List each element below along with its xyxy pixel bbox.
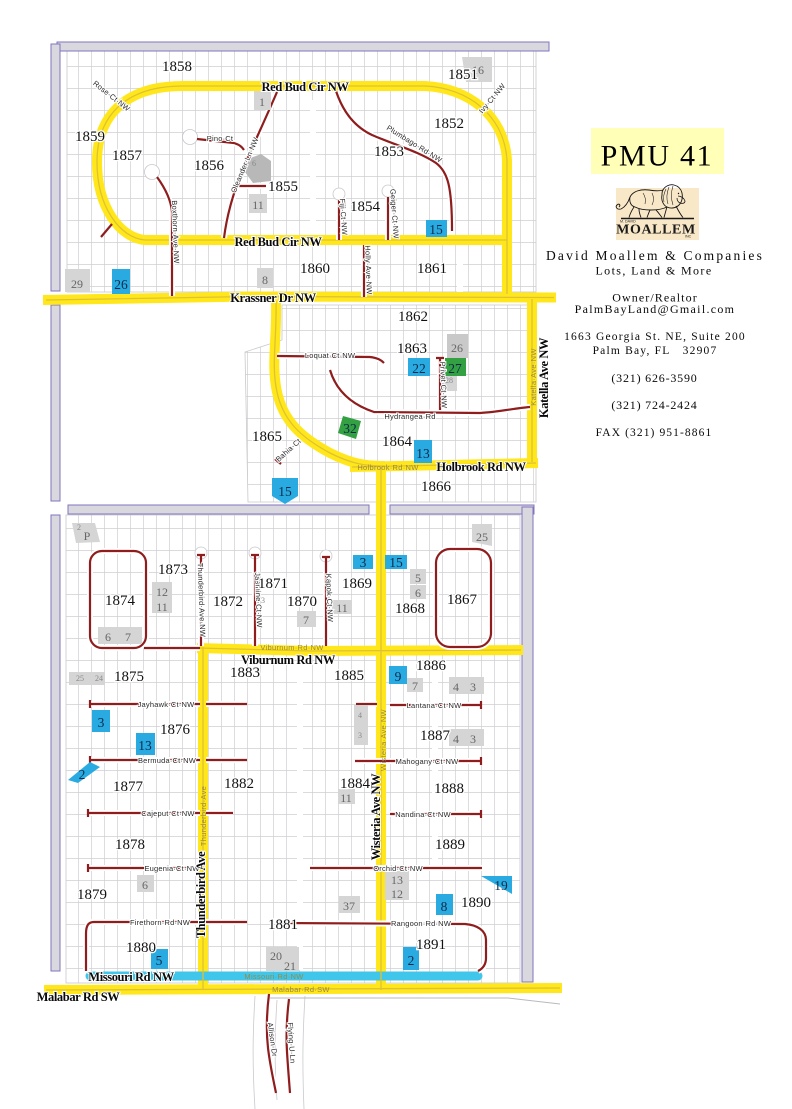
svg-text:7: 7	[412, 679, 418, 693]
svg-text:Wisteria Ave NW: Wisteria Ave NW	[369, 773, 383, 860]
svg-text:Thunderbird Ave: Thunderbird Ave	[194, 851, 208, 938]
svg-text:Palm Bay, FL 32907: Palm Bay, FL 32907	[593, 345, 718, 357]
svg-text:13: 13	[138, 738, 152, 753]
svg-text:Jayhawk·Ct·NW: Jayhawk·Ct·NW	[138, 700, 195, 709]
svg-text:Lantana·Ct·NW: Lantana·Ct·NW	[407, 701, 462, 710]
svg-text:15: 15	[389, 555, 403, 570]
svg-text:1870: 1870	[287, 594, 317, 610]
svg-text:1873: 1873	[158, 562, 188, 578]
svg-text:3: 3	[470, 680, 476, 694]
svg-text:6: 6	[252, 159, 256, 168]
svg-text:1862: 1862	[398, 309, 428, 325]
svg-text:Hydrangea·Rd: Hydrangea·Rd	[384, 412, 435, 421]
svg-text:32: 32	[343, 421, 357, 436]
svg-text:1863: 1863	[397, 341, 427, 357]
svg-text:INC: INC	[685, 235, 692, 239]
svg-text:1885: 1885	[334, 668, 364, 684]
svg-text:1860: 1860	[300, 261, 330, 277]
svg-text:Missouri·Rd·NW: Missouri·Rd·NW	[244, 972, 304, 981]
svg-text:5: 5	[415, 571, 421, 585]
svg-text:12: 12	[156, 585, 168, 599]
svg-text:Katella Ave NW: Katella Ave NW	[537, 337, 551, 418]
svg-text:(321) 724-2424: (321) 724-2424	[611, 398, 697, 412]
svg-text:1866: 1866	[421, 479, 452, 495]
svg-text:Bermuda·Ct·NW: Bermuda·Ct·NW	[138, 756, 197, 765]
svg-text:6: 6	[415, 586, 421, 600]
svg-text:4: 4	[453, 680, 459, 694]
svg-text:37: 37	[343, 899, 355, 913]
svg-text:4: 4	[453, 732, 459, 746]
svg-text:Orchid·Ct·NW: Orchid·Ct·NW	[373, 864, 423, 873]
svg-text:1886: 1886	[416, 658, 447, 674]
svg-text:11: 11	[336, 601, 348, 615]
svg-text:1884: 1884	[340, 776, 371, 792]
svg-text:3: 3	[470, 732, 476, 746]
svg-text:6: 6	[142, 878, 148, 892]
svg-text:26: 26	[114, 277, 128, 292]
svg-text:Pino·Ct: Pino·Ct	[207, 134, 234, 143]
svg-text:1874: 1874	[105, 593, 136, 609]
svg-text:5: 5	[156, 953, 163, 968]
svg-text:(321) 626-3590: (321) 626-3590	[611, 371, 697, 385]
svg-text:Kapok·Ct·NW: Kapok·Ct·NW	[324, 574, 335, 623]
svg-text:29: 29	[71, 277, 83, 291]
svg-text:1852: 1852	[434, 116, 464, 132]
svg-text:1859: 1859	[75, 129, 105, 145]
svg-text:1857: 1857	[112, 148, 143, 164]
svg-text:1891: 1891	[416, 937, 446, 953]
svg-text:Eugenia·Ct·NW: Eugenia·Ct·NW	[144, 864, 200, 873]
svg-text:2: 2	[77, 523, 81, 532]
svg-text:1883: 1883	[230, 665, 260, 681]
svg-text:1853: 1853	[374, 144, 404, 160]
svg-text:1: 1	[259, 95, 265, 109]
svg-text:27: 27	[448, 361, 462, 376]
svg-text:12: 12	[391, 887, 403, 901]
svg-text:1868: 1868	[395, 601, 425, 617]
svg-text:1663 Georgia St. NE, Suite 200: 1663 Georgia St. NE, Suite 200	[564, 331, 746, 343]
svg-text:7: 7	[125, 630, 131, 644]
svg-text:1879: 1879	[77, 887, 107, 903]
svg-text:1875: 1875	[114, 669, 144, 685]
svg-text:1882: 1882	[224, 776, 254, 792]
svg-text:Wisteria·Ave·NW: Wisteria·Ave·NW	[379, 708, 388, 770]
svg-text:Privet·Ct·NW: Privet·Ct·NW	[438, 361, 449, 409]
svg-text:26: 26	[451, 341, 463, 355]
svg-text:7: 7	[303, 613, 309, 627]
svg-text:Holly·Ave·NW: Holly·Ave·NW	[363, 245, 374, 295]
svg-text:Red Bud Cir NW: Red Bud Cir NW	[235, 235, 323, 249]
svg-text:25: 25	[76, 674, 84, 683]
svg-text:1855: 1855	[268, 179, 298, 195]
svg-text:Missouri Rd NW: Missouri Rd NW	[88, 970, 174, 984]
svg-text:FAX (321) 951-8861: FAX (321) 951-8861	[596, 427, 713, 439]
svg-text:6: 6	[105, 630, 111, 644]
svg-text:11: 11	[156, 600, 168, 614]
svg-text:1869: 1869	[342, 576, 372, 592]
svg-text:Krassner Dr NW: Krassner Dr NW	[230, 291, 316, 305]
svg-text:Viburnum·Rd·NW: Viburnum·Rd·NW	[260, 643, 324, 652]
svg-text:8: 8	[441, 899, 448, 914]
svg-text:PalmBayLand@Gmail.com: PalmBayLand@Gmail.com	[575, 302, 736, 316]
svg-text:1851: 1851	[448, 67, 478, 83]
svg-text:1890: 1890	[461, 895, 491, 911]
svg-text:11: 11	[340, 791, 352, 805]
svg-text:1871: 1871	[258, 576, 288, 592]
svg-text:1872: 1872	[213, 594, 243, 610]
svg-text:Rangoon·Rd·NW: Rangoon·Rd·NW	[391, 919, 452, 928]
svg-text:25: 25	[476, 530, 488, 544]
svg-text:Loquat·Ct·NW: Loquat·Ct·NW	[305, 351, 356, 360]
svg-text:21: 21	[284, 959, 296, 973]
svg-text:MOALLEM: MOALLEM	[616, 223, 696, 238]
svg-text:1865: 1865	[252, 429, 282, 445]
svg-text:Mahogany·Ct·NW: Mahogany·Ct·NW	[396, 757, 460, 766]
svg-text:Cajeput·Ct·NW: Cajeput·Ct·NW	[141, 809, 195, 818]
svg-text:2: 2	[79, 767, 86, 782]
svg-text:Malabar·Rd·SW: Malabar·Rd·SW	[272, 985, 330, 994]
svg-text:3: 3	[358, 731, 362, 740]
svg-text:Thunderbird·Ave: Thunderbird·Ave	[199, 786, 208, 846]
svg-text:P: P	[84, 529, 91, 543]
svg-text:Malabar Rd SW: Malabar Rd SW	[37, 990, 121, 1004]
svg-text:1881: 1881	[268, 917, 298, 933]
svg-text:1877: 1877	[113, 779, 144, 795]
svg-text:1878: 1878	[115, 837, 145, 853]
svg-text:1887: 1887	[420, 728, 451, 744]
svg-text:1889: 1889	[435, 837, 465, 853]
svg-text:1876: 1876	[160, 722, 191, 738]
svg-text:24: 24	[95, 674, 103, 683]
svg-text:11: 11	[252, 198, 264, 212]
svg-text:1856: 1856	[194, 158, 225, 174]
svg-text:1888: 1888	[434, 781, 464, 797]
svg-text:3: 3	[360, 555, 367, 570]
svg-text:20: 20	[270, 949, 282, 963]
svg-text:Firethorn·Rd·NW: Firethorn·Rd·NW	[130, 918, 191, 927]
svg-text:13: 13	[416, 446, 430, 461]
svg-text:1854: 1854	[350, 199, 381, 215]
svg-text:19: 19	[494, 878, 508, 893]
svg-text:Red Bud Cir NW: Red Bud Cir NW	[262, 80, 350, 94]
svg-text:Holbrook Rd NW: Holbrook Rd NW	[436, 460, 526, 474]
svg-text:13: 13	[391, 873, 403, 887]
svg-text:1861: 1861	[417, 261, 447, 277]
svg-text:22: 22	[412, 361, 426, 376]
svg-text:15: 15	[278, 484, 292, 499]
svg-text:Lots, Land & More: Lots, Land & More	[595, 264, 712, 278]
svg-text:3: 3	[98, 715, 105, 730]
svg-text:Holbrook·Rd·NW: Holbrook·Rd·NW	[357, 463, 419, 472]
svg-text:4: 4	[358, 711, 362, 720]
svg-text:PMU 41: PMU 41	[601, 140, 714, 173]
svg-text:1867: 1867	[447, 592, 478, 608]
svg-text:David Moallem & Companies: David Moallem & Companies	[546, 248, 764, 263]
svg-text:1858: 1858	[162, 59, 192, 75]
svg-text:8: 8	[262, 273, 268, 287]
svg-text:1864: 1864	[382, 434, 413, 450]
svg-text:15: 15	[429, 222, 443, 237]
svg-text:2: 2	[408, 953, 415, 968]
svg-text:Nandina·Ct·NW: Nandina·Ct·NW	[395, 810, 451, 819]
svg-text:9: 9	[395, 669, 402, 684]
svg-text:1880: 1880	[126, 940, 156, 956]
